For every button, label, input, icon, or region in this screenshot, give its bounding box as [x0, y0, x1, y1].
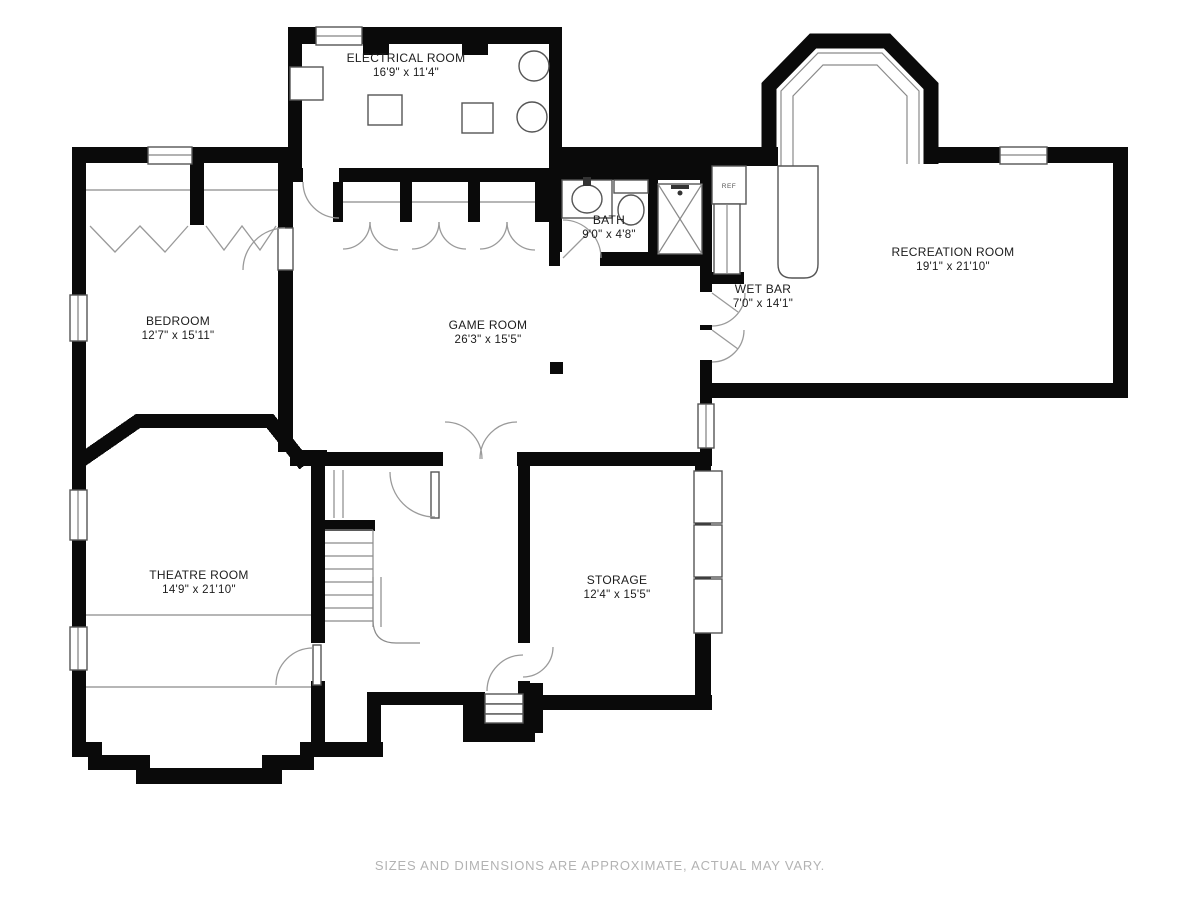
- window: [70, 490, 87, 540]
- room-label-recreation: RECREATION ROOM 19'1" x 21'10": [892, 245, 1015, 275]
- window: [70, 627, 87, 670]
- room-name: THEATRE ROOM: [149, 568, 248, 583]
- window: [698, 404, 714, 448]
- bay-window: [769, 41, 931, 166]
- room-label-game: GAME ROOM 26'3" x 15'5": [449, 318, 528, 348]
- walls: [72, 27, 1128, 784]
- room-name: ELECTRICAL ROOM: [347, 51, 466, 66]
- disclaimer-text: SIZES AND DIMENSIONS ARE APPROXIMATE, AC…: [0, 858, 1200, 873]
- room-name: WET BAR: [733, 282, 793, 297]
- window: [70, 295, 87, 341]
- window: [316, 27, 362, 45]
- door-arc: [276, 645, 321, 685]
- room-dimensions: 26'3" x 15'5": [449, 333, 528, 348]
- window: [148, 147, 192, 164]
- room-dimensions: 14'9" x 21'10": [149, 583, 248, 598]
- window: [1000, 147, 1047, 164]
- room-name: BEDROOM: [142, 314, 215, 329]
- equipment-unit: [368, 95, 402, 125]
- room-label-storage: STORAGE 12'4" x 15'5": [584, 573, 651, 603]
- storage-shelves: [694, 471, 722, 633]
- svg-text:REF: REF: [722, 183, 737, 190]
- room-dimensions: 12'4" x 15'5": [584, 588, 651, 603]
- room-label-bedroom: BEDROOM 12'7" x 15'11": [142, 314, 215, 344]
- room-dimensions: 12'7" x 15'11": [142, 329, 215, 344]
- equipment-unit: [462, 103, 493, 133]
- room-label-bath: BATH 9'0" x 4'8": [582, 213, 636, 243]
- room-label-electrical: ELECTRICAL ROOM 16'9" x 11'4": [347, 51, 466, 81]
- room-name: STORAGE: [584, 573, 651, 588]
- room-dimensions: 16'9" x 11'4": [347, 66, 466, 81]
- room-name: GAME ROOM: [449, 318, 528, 333]
- closet-lines: [334, 470, 343, 518]
- wet-bar-counter: [714, 204, 740, 274]
- shower: [658, 184, 702, 254]
- room-label-wetbar: WET BAR 7'0" x 14'1": [733, 282, 793, 312]
- water-tank: [517, 102, 547, 132]
- room-dimensions: 19'1" x 21'10": [892, 260, 1015, 275]
- bifold-door: [90, 226, 188, 252]
- closet-door-arcs: [343, 222, 535, 250]
- electrical-panel: [290, 67, 323, 100]
- bar-counter: [778, 166, 818, 278]
- door-arc: [243, 228, 293, 270]
- shelf-lines: [86, 190, 535, 202]
- room-label-theatre: THEATRE ROOM 14'9" x 21'10": [149, 568, 248, 598]
- floor-plan: REF: [0, 0, 1200, 900]
- room-dimensions: 9'0" x 4'8": [582, 228, 636, 243]
- stairs: [325, 530, 420, 643]
- room-dimensions: 7'0" x 14'1": [733, 297, 793, 312]
- support-post: [550, 362, 563, 374]
- room-name: BATH: [582, 213, 636, 228]
- bifold-door: [206, 226, 276, 250]
- room-name: RECREATION ROOM: [892, 245, 1015, 260]
- floor-plan-drawing: REF: [0, 0, 1200, 900]
- door-arc: [390, 472, 439, 518]
- entry-steps: [485, 694, 523, 723]
- door-arc: [523, 647, 553, 677]
- door-arc: [487, 655, 523, 691]
- water-tank: [519, 51, 549, 81]
- refrigerator: REF: [712, 166, 746, 204]
- sink-vanity: [562, 177, 612, 218]
